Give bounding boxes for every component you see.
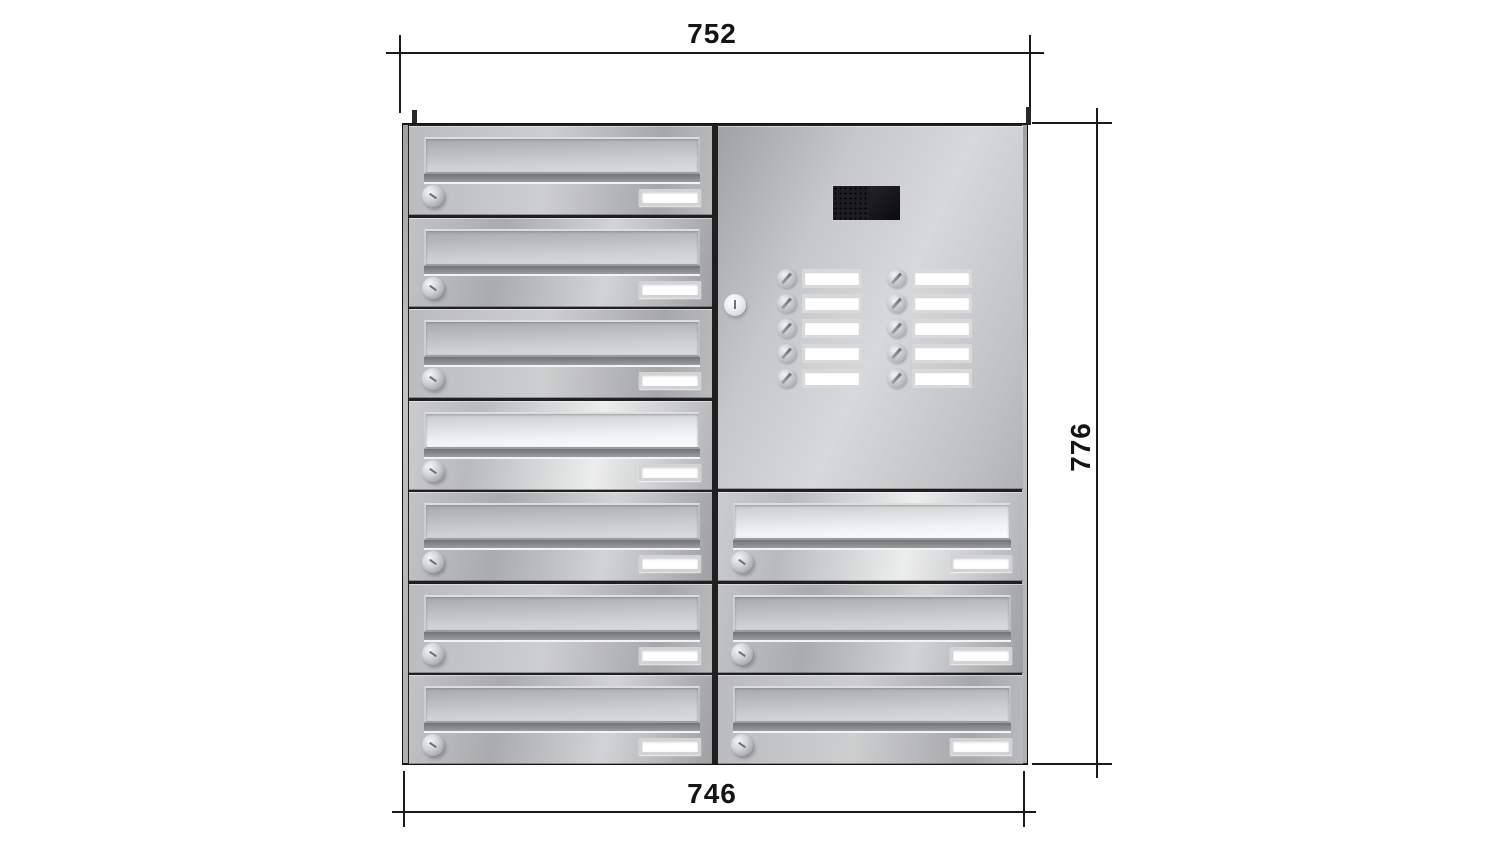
bell-button xyxy=(777,319,796,338)
lock-cylinder xyxy=(422,643,444,665)
dimension-top-label: 752 xyxy=(612,19,812,49)
left-column xyxy=(409,126,712,764)
dimension-right-tick-bottom xyxy=(1032,763,1112,765)
bell-button xyxy=(777,344,796,363)
letter-flap xyxy=(733,503,1011,540)
mailbox-door xyxy=(409,126,712,215)
letter-flap xyxy=(424,412,700,449)
nameplate xyxy=(639,647,701,664)
letter-flap-shadow xyxy=(733,723,1011,733)
speaker-grille-icon xyxy=(833,186,870,220)
bell-nameplate xyxy=(802,369,862,388)
mailbox-door xyxy=(718,675,1023,764)
bell-button xyxy=(887,319,906,338)
bell-nameplate xyxy=(912,319,972,338)
nameplate xyxy=(639,555,701,572)
intercom-lock-cylinder xyxy=(724,294,746,316)
mailbox-door xyxy=(409,309,712,398)
letter-flap xyxy=(424,320,700,357)
bell-button xyxy=(887,294,906,313)
lock-cylinder xyxy=(422,185,444,207)
bell-nameplate xyxy=(912,294,972,313)
nameplate xyxy=(639,189,701,206)
nameplate xyxy=(639,464,701,481)
bell-nameplate xyxy=(912,344,972,363)
dimension-bottom-tick-left xyxy=(403,771,405,827)
lock-cylinder xyxy=(422,368,444,390)
corner-tab-left xyxy=(412,110,417,124)
dimension-right-line xyxy=(1096,108,1098,778)
nameplate xyxy=(639,281,701,298)
bell-nameplate xyxy=(802,344,862,363)
bell-button xyxy=(777,369,796,388)
mailbox-door xyxy=(409,218,712,307)
mailbox-door xyxy=(409,492,712,581)
lock-cylinder xyxy=(731,551,753,573)
right-column xyxy=(718,126,1023,764)
dimension-top-tick-right xyxy=(1029,35,1031,113)
bell-nameplate xyxy=(912,269,972,288)
letter-flap xyxy=(424,503,700,540)
lock-cylinder xyxy=(422,277,444,299)
side-wall-left xyxy=(403,125,408,763)
bell-button xyxy=(887,269,906,288)
letter-flap-shadow xyxy=(733,632,1011,642)
letter-flap-shadow xyxy=(424,632,700,642)
lock-cylinder xyxy=(422,734,444,756)
dimension-bottom-line xyxy=(392,811,1036,813)
letter-flap-shadow xyxy=(733,540,1011,550)
bell-button xyxy=(887,344,906,363)
letter-flap-shadow xyxy=(424,357,700,367)
letter-flap-shadow xyxy=(424,266,700,276)
intercom-panel xyxy=(718,126,1023,489)
letter-flap-shadow xyxy=(424,723,700,733)
lock-cylinder xyxy=(731,734,753,756)
dimension-top-tick-left xyxy=(399,35,401,113)
lock-cylinder xyxy=(731,643,753,665)
lock-cylinder xyxy=(422,551,444,573)
bell-nameplate xyxy=(802,269,862,288)
nameplate xyxy=(950,738,1012,755)
mailbox-door xyxy=(409,401,712,490)
letter-flap-shadow xyxy=(424,449,700,459)
letter-flap xyxy=(424,595,700,632)
letter-flap xyxy=(424,686,700,723)
letter-flap xyxy=(424,229,700,266)
dimension-top-line xyxy=(386,52,1044,54)
lock-cylinder xyxy=(422,460,444,482)
mailbox-door xyxy=(718,492,1023,581)
letter-flap-shadow xyxy=(424,540,700,550)
dimension-bottom-tick-right xyxy=(1023,771,1025,827)
mailbox-door xyxy=(718,584,1023,673)
dimension-right-tick-top xyxy=(1032,122,1112,124)
dimension-right-label: 776 xyxy=(1066,387,1096,507)
bell-button xyxy=(887,369,906,388)
mailbox-unit xyxy=(402,123,1028,765)
camera-window-icon xyxy=(870,186,900,220)
dimension-bottom-label: 746 xyxy=(612,779,812,809)
intercom-camera-speaker-module xyxy=(832,185,901,221)
mailbox-door xyxy=(409,675,712,764)
bell-button-grid xyxy=(777,266,972,391)
nameplate xyxy=(950,555,1012,572)
nameplate xyxy=(950,647,1012,664)
letter-flap-shadow xyxy=(424,174,700,184)
bell-button xyxy=(777,269,796,288)
letter-flap xyxy=(733,595,1011,632)
bell-nameplate xyxy=(912,369,972,388)
bell-nameplate xyxy=(802,319,862,338)
bell-button xyxy=(777,294,796,313)
mailbox-door xyxy=(409,584,712,673)
bell-nameplate xyxy=(802,294,862,313)
letter-flap xyxy=(733,686,1011,723)
nameplate xyxy=(639,738,701,755)
nameplate xyxy=(639,372,701,389)
letter-flap xyxy=(424,137,700,174)
